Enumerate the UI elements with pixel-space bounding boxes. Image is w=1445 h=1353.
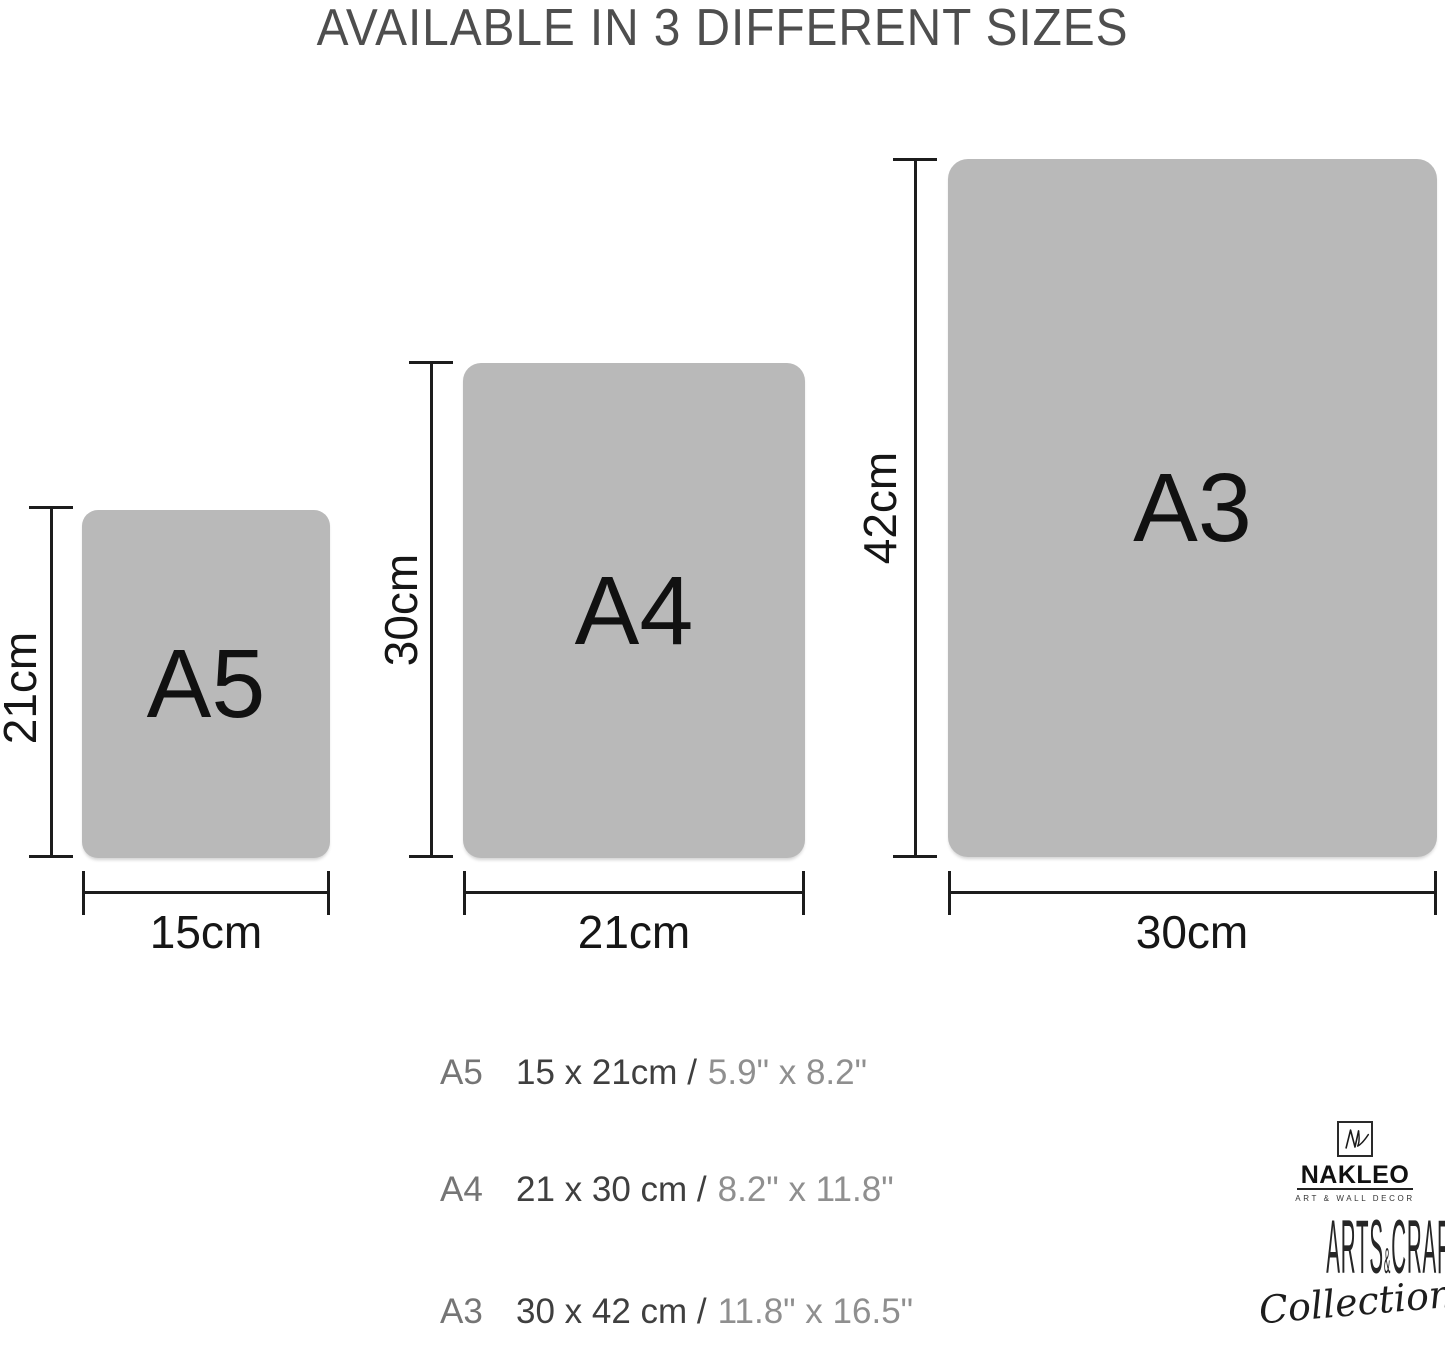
size-list-imperial: 11.8" x 16.5"	[718, 1292, 913, 1332]
page-title: AVAILABLE IN 3 DIFFERENT SIZES	[58, 0, 1387, 56]
a4-width-label: 21cm	[578, 905, 690, 959]
size-list-metric: 21 x 30 cm /	[516, 1170, 707, 1210]
a3-height-dimension-cap-bottom	[893, 855, 937, 858]
a5-width-dimension-line	[82, 891, 330, 894]
a5-panel-label: A5	[147, 628, 266, 740]
a3-width-dimension-cap-right	[1434, 871, 1437, 915]
a3-size-panel: A3	[948, 159, 1437, 857]
a5-width-dimension-cap-right	[327, 871, 330, 915]
size-list-imperial: 5.9" x 8.2"	[708, 1053, 867, 1093]
brand-tagline: ART & WALL DECOR	[1290, 1194, 1420, 1203]
a5-width-label: 15cm	[150, 905, 262, 959]
a3-panel-label: A3	[1133, 452, 1252, 564]
a3-width-label: 30cm	[1136, 905, 1248, 959]
a4-width-dimension-cap-right	[802, 871, 805, 915]
a4-width-dimension-line	[463, 891, 805, 894]
nl-signature-icon	[1339, 1123, 1371, 1155]
a3-height-dimension-line	[914, 159, 917, 857]
size-list-row-a4: A4 21 x 30 cm / 8.2" x 11.8"	[440, 1170, 894, 1210]
size-list-label: A5	[440, 1053, 516, 1093]
a5-height-dimension-cap-bottom	[29, 855, 73, 858]
size-list-metric: 15 x 21cm /	[516, 1053, 697, 1093]
size-list-imperial: 8.2" x 11.8"	[718, 1170, 894, 1210]
a4-height-label: 30cm	[374, 554, 428, 666]
a5-height-dimension-line	[50, 508, 53, 857]
size-list-metric: 30 x 42 cm /	[516, 1292, 707, 1332]
collection-script-text: Collection	[1245, 1270, 1445, 1333]
a5-size-panel: A5	[82, 510, 330, 858]
a4-height-dimension-cap-bottom	[409, 855, 453, 858]
size-list-label: A3	[440, 1292, 516, 1332]
nakleo-monogram-icon	[1337, 1121, 1373, 1157]
a5-height-label: 21cm	[0, 632, 47, 744]
brand-name: NAKLEO	[1290, 1161, 1420, 1190]
a4-panel-label: A4	[575, 555, 694, 667]
a4-height-dimension-line	[430, 362, 433, 857]
size-list-row-a3: A3 30 x 42 cm / 11.8" x 16.5"	[440, 1292, 913, 1332]
size-guide-infographic: AVAILABLE IN 3 DIFFERENT SIZES 21cm A5 1…	[0, 0, 1445, 1353]
a4-size-panel: A4	[463, 363, 805, 858]
size-list-row-a5: A5 15 x 21cm / 5.9" x 8.2"	[440, 1053, 867, 1093]
a3-width-dimension-line	[948, 891, 1437, 894]
brand-divider	[1297, 1188, 1413, 1190]
size-list-label: A4	[440, 1170, 516, 1210]
a3-height-label: 42cm	[853, 452, 907, 564]
ampersand: &	[1384, 1240, 1391, 1281]
